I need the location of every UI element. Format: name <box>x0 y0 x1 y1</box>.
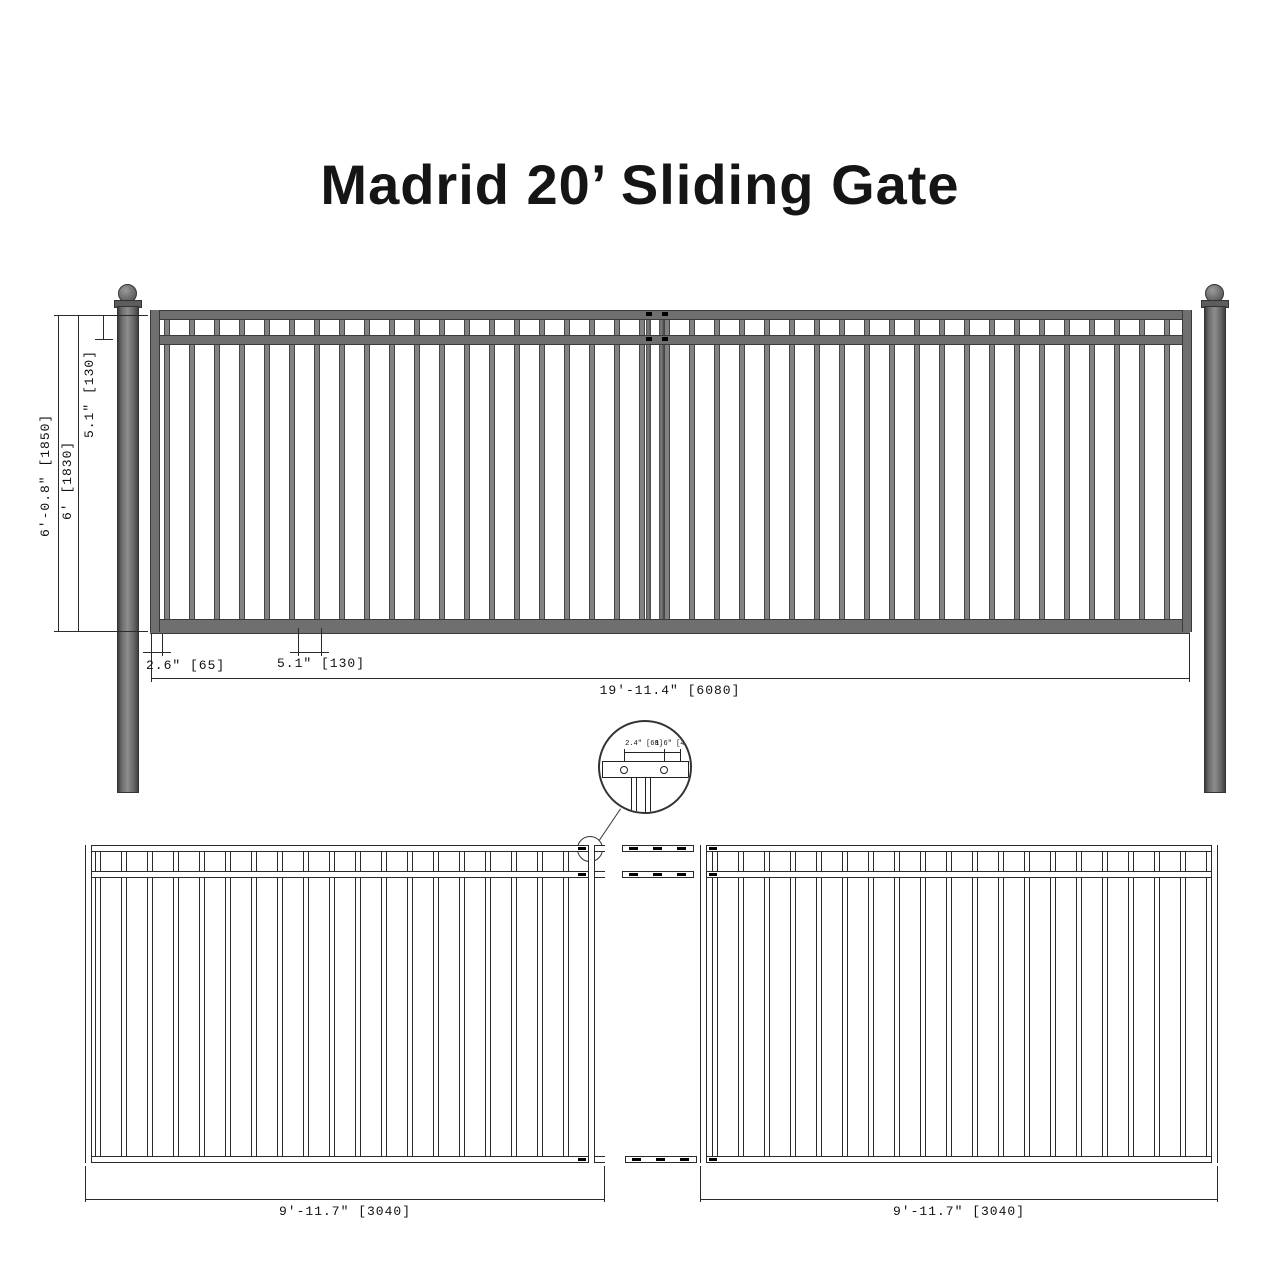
splice-bolt-mark <box>653 847 662 850</box>
right-panel-mid-rail <box>700 871 1218 878</box>
splice-bolt-mark <box>677 847 686 850</box>
right-post <box>1204 306 1226 793</box>
dim-line-left-panel <box>85 1199 605 1200</box>
splice-bolt-mark <box>629 847 638 850</box>
picket-spacing-label: 5.1" [130] <box>277 656 365 671</box>
gate-right-stile <box>1182 310 1192 632</box>
dim-line-right-panel <box>700 1199 1218 1200</box>
detail-dim-line <box>624 752 681 753</box>
panel-bolt-mark <box>578 873 586 876</box>
right-panel-right-stile <box>1211 845 1218 1163</box>
joint-bolt-mark <box>662 337 668 341</box>
detail-picket <box>645 778 651 814</box>
dim-extension-line <box>1189 634 1190 682</box>
picket-edge-offset-label: 2.6" [65] <box>146 658 225 673</box>
splice-bar-bottom <box>625 1156 697 1163</box>
splice-bar-mid <box>622 871 694 878</box>
dim-extension-line <box>54 315 148 316</box>
gate-top-rail <box>150 310 1190 320</box>
hole-edge-offset-label: 1.6" [40] <box>655 740 692 748</box>
detail-leader-line <box>599 808 621 840</box>
gate-height-label: 6' [1830] <box>60 380 75 580</box>
dim-line-overall-height <box>58 315 59 631</box>
gate-bottom-rail <box>150 619 1190 634</box>
drawing-sheet: Madrid 20’ Sliding Gate 6'-0.8" [ <box>0 0 1280 1280</box>
detail-bolt-hole <box>620 766 628 774</box>
detail-circle: 2.4" [60] 1.6" [40] <box>598 720 692 814</box>
splice-bolt-mark <box>680 1158 689 1161</box>
dim-line-overall-width <box>151 678 1190 679</box>
dim-line-rail-spacing <box>103 315 104 340</box>
gate-joint-picket-right <box>659 314 664 622</box>
joint-bolt-mark <box>646 337 652 341</box>
dim-tick <box>290 652 329 653</box>
splice-bolt-mark <box>629 873 638 876</box>
left-panel-mid-rail <box>85 871 605 878</box>
page-title: Madrid 20’ Sliding Gate <box>0 152 1280 217</box>
right-panel-top-rail <box>700 845 1218 852</box>
dim-extension-line <box>54 631 148 632</box>
overall-height-label: 6'-0.8" [1850] <box>38 370 53 580</box>
right-panel-left-stile <box>700 845 707 1163</box>
gate-joint-picket-left <box>646 314 651 622</box>
left-post <box>117 306 139 793</box>
splice-bar-top <box>622 845 694 852</box>
left-panel-right-stile <box>588 845 595 1163</box>
joint-bolt-mark <box>662 312 668 316</box>
right-panel-pickets <box>712 851 1209 1157</box>
left-panel-pickets <box>95 851 596 1157</box>
dim-extension-line <box>700 1166 701 1202</box>
panel-bolt-mark <box>578 1158 586 1161</box>
left-panel-width-label: 9'-11.7" [3040] <box>279 1204 411 1219</box>
right-panel-width-label: 9'-11.7" [3040] <box>893 1204 1025 1219</box>
left-panel-top-rail <box>85 845 605 852</box>
dim-line-gate-height <box>78 315 79 631</box>
panel-bolt-mark <box>578 847 586 850</box>
detail-bolt-hole <box>660 766 668 774</box>
gate-mid-rail <box>150 335 1190 345</box>
detail-picket <box>631 778 637 814</box>
splice-bolt-mark <box>656 1158 665 1161</box>
joint-bolt-mark <box>646 312 652 316</box>
rail-spacing-label: 5.1" [130] <box>82 344 97 444</box>
detail-splice-bar <box>602 761 689 778</box>
left-panel-left-stile <box>85 845 92 1163</box>
left-panel-bottom-rail <box>85 1156 605 1163</box>
splice-bolt-mark <box>677 873 686 876</box>
dim-extension-line <box>1217 1166 1218 1202</box>
right-panel-bottom-rail <box>700 1156 1218 1163</box>
dim-extension-line <box>604 1166 605 1202</box>
panel-bolt-mark <box>709 1158 717 1161</box>
panel-bolt-mark <box>709 873 717 876</box>
dim-tick <box>143 652 171 653</box>
gate-left-stile <box>150 310 160 632</box>
dim-tick <box>95 339 113 340</box>
gate-pickets <box>164 314 1182 622</box>
splice-bolt-mark <box>632 1158 641 1161</box>
dim-extension-line <box>85 1166 86 1202</box>
splice-bolt-mark <box>653 873 662 876</box>
panel-bolt-mark <box>709 847 717 850</box>
overall-width-label: 19'-11.4" [6080] <box>600 683 741 698</box>
